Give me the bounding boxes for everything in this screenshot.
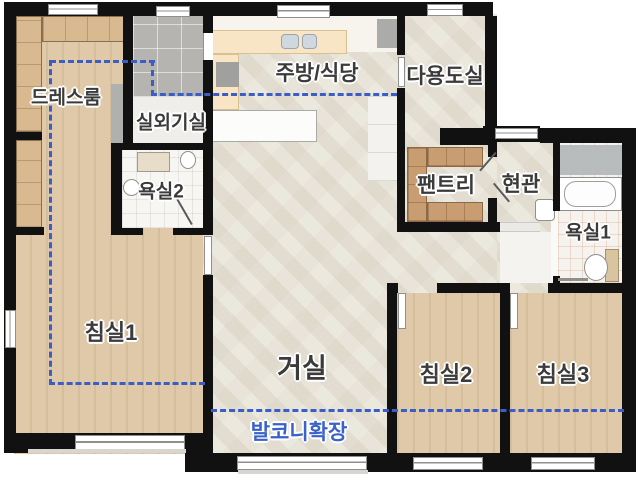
wall-dress-outdoor (123, 16, 133, 147)
bath1-toilet-bowl (584, 254, 608, 281)
wall-bedrooms-top-b (437, 283, 510, 293)
room-label-bedroom2: 침실2 (420, 357, 473, 389)
wall-right (622, 128, 636, 472)
wall-utility-pantry-left-a (397, 16, 405, 55)
wall-bath1-left (553, 143, 560, 211)
balcony-line-kitchen (151, 93, 397, 96)
wall-kitchen-left-mid (203, 60, 213, 235)
window-bedroom1-bottom (75, 435, 185, 450)
wall-pantry-bottom (397, 222, 500, 232)
room-label-bathroom1: 욕실1 (565, 218, 611, 245)
wall-bedrooms-top-a (387, 283, 398, 293)
kitchen-island (212, 110, 317, 142)
door-leaf-utility (398, 57, 405, 87)
balcony-line-top-left (50, 60, 155, 63)
pantry-shelf-bottom (427, 202, 483, 222)
door-line-bathroom1 (558, 278, 588, 281)
pantry-shelf-top (427, 147, 483, 167)
bath2-vanity (137, 152, 170, 172)
wardrobe-left-lower (16, 140, 42, 228)
room-label-dressroom: 드레스룸 (31, 83, 101, 110)
kitchen-sink-left (281, 34, 299, 49)
wall-under-outdoor (111, 143, 210, 150)
door-leaf-bedroom2 (398, 293, 406, 329)
sill-bedroom1 (28, 449, 186, 453)
wall-pantry-top-right (440, 128, 497, 145)
room-label-pantry: 팬트리 (417, 169, 475, 199)
wardrobe-left-upper (16, 16, 42, 132)
balcony-line-south (211, 409, 624, 412)
wall-pantry-right-stub-bottom (488, 198, 497, 222)
wall-bedroom1-living (203, 275, 213, 453)
window-outdoor-unit-top (156, 6, 190, 17)
wall-bath2-bottom-left (111, 228, 143, 235)
window-bedroom3-bottom (531, 457, 595, 470)
floor-bath1-approach (500, 232, 553, 283)
wall-utility-pantry-left-b (397, 88, 405, 230)
kitchen-sink-right (302, 34, 317, 49)
room-label-bedroom3: 침실3 (537, 357, 590, 389)
wall-bath2-left (111, 150, 122, 235)
room-label-living: 거실 (277, 347, 327, 386)
refrigerator (377, 19, 397, 48)
entrance-step (495, 222, 540, 232)
stove (216, 62, 239, 87)
balcony-line-connector (151, 60, 154, 96)
wall-bath1-top (540, 128, 636, 143)
window-living-bottom (237, 456, 367, 470)
bathtub-inner (564, 181, 616, 207)
door-opening-outdoor-unit (203, 33, 213, 60)
room-label-outdoor-unit: 실외기실 (136, 108, 206, 135)
wall-left (4, 16, 16, 453)
bath1-shower-box (558, 145, 622, 175)
wall-bedroom2-bedroom3 (500, 293, 510, 453)
window-bedroom1-left (5, 310, 16, 348)
balcony-line-bedroom1 (49, 382, 205, 385)
door-leaf-bedroom1 (204, 236, 212, 275)
wall-dress-divider-upper (16, 132, 42, 140)
wall-kitchen-left-top (203, 16, 213, 33)
window-bedroom2-bottom (413, 457, 483, 470)
room-label-entrance: 현관 (502, 168, 541, 198)
bath2-toilet (180, 151, 196, 169)
wall-dress-divider-lower (16, 227, 44, 235)
floor-corridor-strip (368, 96, 397, 181)
window-kitchen-top (277, 5, 330, 18)
wardrobe-top (42, 16, 132, 42)
room-label-utility: 다용도실 (406, 60, 483, 90)
window-utility-top (427, 4, 463, 16)
wall-living-bedroom2 (387, 293, 397, 453)
room-label-bedroom1: 침실1 (85, 315, 138, 347)
floorplan: 드레스룸 실외기실 욕실2 주방/식당 다용도실 팬트리 현관 욕실1 침실1 … (0, 0, 640, 480)
door-leaf-bedroom3 (510, 293, 518, 329)
wall-bedrooms-top-c (548, 283, 622, 293)
floor-outdoor-unit-tile (133, 16, 205, 97)
entrance-washbasin (535, 199, 555, 221)
wall-utility-right (485, 16, 497, 128)
kitchen-counter-top (211, 30, 347, 54)
room-label-kitchen: 주방/식당 (275, 57, 358, 87)
sill-living (238, 470, 368, 474)
room-label-bathroom2: 욕실2 (138, 177, 184, 204)
window-dressroom-top (48, 4, 98, 15)
balcony-extension-label: 발코니확장 (251, 416, 348, 446)
front-door (495, 128, 538, 139)
